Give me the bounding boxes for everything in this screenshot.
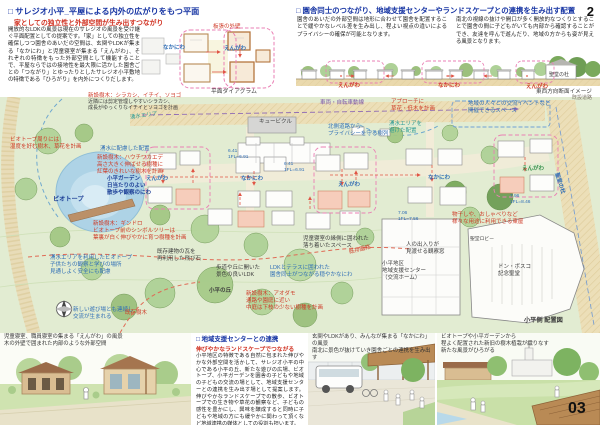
note-new-tree-maple: 新設樹木：ハウチワカエデ 高さ大きく伸ばせる樹種に 紅葉のきれいな樹木を計画 [97,155,163,176]
label-chapel-lobby: 聖堂ロビー [470,237,494,243]
label-level-706: 7.06 1FL=7.56 [398,211,418,223]
plan-section-title: □ サレジオ小平_平屋による内外の広がりをもつ平面 [8,5,298,17]
diagram-engawa-label: えんがわ [224,46,246,53]
note-new-tree-gindoro: 新設樹木：ギンドロ ビオトープ前のシンボルツリーは 葉裏が白く伸びやかに育つ樹種… [93,221,187,242]
note-observation: 人の出入りが 見渡せる観察窓 [406,242,445,256]
layout-section-body-left: 園舎のあいだの外部空間は地形に合わせて園舎を配置することで緩やかなレベル差を生み… [297,17,447,39]
diagram-nakaniwa-label: なかにわ [163,45,185,52]
plan-section-subtitle: 家としての独立性と外部空間が生み出すつながり [14,17,163,27]
label-vehicle-route: 車両・自転車動線 [320,100,364,107]
diagram-wall-label: 板張の外壁 [213,24,241,31]
layout-section-title: □ 園舎同士のつながり、地域支援センターやランドスケープとの連携を生み出す配置 [296,5,596,16]
layout-section-body-right: 南北の視線の抜けや開口が多く開放的なつくりとすることで園舎の間に子どもがいても内… [456,17,594,46]
center-section-subtitle: 伸びやかなランドスケープでつながる [196,344,294,353]
presentation-board: □ サレジオ小平_平屋による内外の広がりをもつ平面 家としての独立性と外部空間が… [0,0,600,425]
elevation-engawa-1: えんがわ [338,83,360,90]
note-spring-layout: 湧水に配慮した配置 [100,146,150,153]
label-kodaira-garden: 小平ガーデン 日当たりのよい 散歩や観察のにわ [107,176,151,197]
plan-section-body: 開放的なLDKの風景は現在のサレジオの風景を受け継ぐ平面配置としての提案です。「… [8,27,140,85]
label-support-center: 小平地区 地域支援センター （交流ホーム） [382,261,426,282]
label-kodaira-hill: 小平の丘 [209,288,231,295]
note-biotope-learning: 湧水エリアを利用したビオトープ 子供たちの観察と学びの場所 見通しよく安全にも配… [50,255,132,276]
perspective-engawa-caption: 児童寝室、職員寝室の集まる「えんがわ」の風景 木の外壁で囲まれた内部のような外部… [4,334,188,348]
label-nakaniwa-2: なかにわ [428,175,450,182]
perspective-nakaniwa-caption: 玄関やLDKがあり、みんなが集まる「なかにわ」の風景 南北に景色が抜けていき園舎… [312,334,432,362]
label-level-641b: 6.41 1FL=6.91 [284,162,304,174]
perspective-landscape-caption: ビオトープや小平ガーデンから 程よく配置された新旧の樹木植栽が織りなす 新たな風… [441,334,597,355]
label-nakaniwa-1: なかにわ [241,176,263,183]
note-biotope-plants: ビオトープ周りには 湿度を好む樹木、草花を計画 [10,137,82,151]
note-approach-plants: アプローチに 草花・低木を計画 [391,99,435,113]
elevation-mori-label: 聖堂の杜 [549,72,569,78]
note-community-space: 地域の人々との交流イベントなど 開催できるスペース [468,101,550,115]
plan-caption: 小平側 配置図 [524,317,563,325]
note-new-trees-north-detail: 近隣には剪定管理しやすいシラカシ、 成長がゆっくりなイチイとソヨゴを計画 [88,99,178,112]
label-chapel: ドン・ボスコ 記念聖堂 [498,264,531,278]
note-ldk-view: 歩道や丘に開いた 景色の良いLDK [216,265,260,279]
elevation-nakaniwa: なかにわ [438,83,460,90]
note-azumaya: 物干しや、おしゃべりなど 様々な用途に利用できる東屋 [452,212,523,226]
note-stepping-stones: 既存建物の瓦を 再利用した飛び石 [157,249,201,263]
label-cubicle: キュービクル [259,119,292,126]
note-new-tree-aodamo: 新設樹木：アオダモ 通路や園庭に近い 中庭は下枝の少ない樹種を計画 [246,291,323,312]
page-number-top: 2 [587,4,594,19]
note-ldk-terrace: LDKとテラスに囲われた 園舎同士がつながる穏やかなにわ [270,265,353,279]
perspective-nakaniwa-image: 玄関やLDKがあり、みんなが集まる「なかにわ」の風景 南北に景色が抜けていき園舎… [308,332,435,425]
elevation-road-label: 既設道路 [572,95,592,101]
plan-diagram-image [140,24,300,94]
diagram-caption: 平面ダイアグラム [211,89,257,96]
center-section-title: □ 地域支援センターとの連携 [196,334,304,343]
label-existing-trees: 既存樹木 [125,310,147,317]
perspective-engawa-image: 児童寝室、職員寝室の集まる「えんがわ」の風景 木の外壁で囲まれた内部のような外部… [0,332,191,425]
page-number-bottom: 03 [568,400,586,418]
label-engawa-2: えんがわ [338,182,360,189]
note-avoid-spring: 湧水エリアを 避けた配置 [389,121,422,135]
label-engawa-1: えんがわ [146,176,168,183]
note-privacy-trees: 北側道路から プライバシーを守る樹列 [328,124,388,138]
label-engawa-3: えんがわ [522,166,544,173]
label-biotope: ビオトープ [53,196,84,204]
center-section-body: 小平地区の特徴である自然に包まれた伸びやかな外部空間を活かして、サレジオ小平の中… [196,353,304,425]
label-level-796: 7.96 1FL=8.46 [510,194,530,206]
label-level-641a: 6.41 1FL=6.91 [228,149,248,161]
